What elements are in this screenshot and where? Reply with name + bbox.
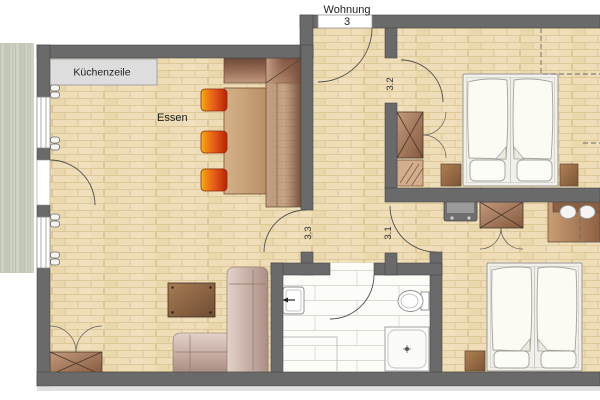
wall-segment bbox=[385, 103, 397, 188]
hall-shelf bbox=[397, 160, 423, 186]
door-label-3-3: 3.3 bbox=[303, 226, 314, 239]
dining-label: Essen bbox=[157, 112, 188, 124]
toilet bbox=[398, 291, 429, 312]
wall-segment bbox=[374, 263, 442, 275]
wall-segment bbox=[37, 268, 50, 386]
wall-segment bbox=[37, 148, 50, 160]
shower bbox=[385, 327, 429, 371]
window bbox=[37, 97, 50, 148]
dining-chairs bbox=[201, 89, 227, 191]
door-label-3-2: 3.2 bbox=[385, 77, 396, 90]
dining-chair bbox=[201, 89, 227, 111]
wall-segment bbox=[37, 372, 600, 386]
double-bed-2 bbox=[487, 263, 582, 371]
terrace bbox=[0, 43, 34, 273]
nightstand bbox=[560, 164, 578, 186]
wall-segment bbox=[385, 28, 397, 58]
duvet bbox=[513, 79, 553, 159]
wall-segment bbox=[385, 188, 600, 202]
desk bbox=[548, 199, 600, 242]
window bbox=[37, 217, 50, 268]
wall-segment bbox=[37, 45, 50, 97]
floor-plan-drawing: Küchenzeile bbox=[0, 0, 600, 400]
wall-segment bbox=[301, 45, 313, 210]
dining-chair bbox=[201, 169, 227, 191]
kitchen-unit-label: Küchenzeile bbox=[73, 67, 130, 79]
balcony-door-opening bbox=[37, 160, 50, 205]
wall-segment bbox=[37, 205, 50, 217]
pillow bbox=[470, 160, 505, 181]
dining-table bbox=[224, 88, 266, 194]
desk-chair bbox=[560, 206, 576, 219]
apartment-label-line2: 3 bbox=[344, 16, 350, 28]
wall-segment bbox=[385, 253, 397, 275]
wall-segment bbox=[372, 15, 600, 28]
double-bed-1 bbox=[463, 74, 558, 186]
pillow bbox=[517, 160, 552, 181]
door-label-3-1: 3.1 bbox=[383, 226, 394, 239]
pillow bbox=[541, 351, 576, 368]
tv bbox=[444, 199, 477, 221]
bathroom-sink bbox=[283, 287, 305, 314]
kitchen-unit: Küchenzeile bbox=[47, 59, 157, 85]
coffee-table bbox=[168, 283, 215, 317]
dining-chair bbox=[201, 131, 227, 153]
nightstand bbox=[465, 351, 485, 371]
wall-segment bbox=[37, 45, 313, 58]
duvet bbox=[537, 267, 577, 351]
nightstand bbox=[441, 164, 461, 186]
wall-shadow bbox=[37, 386, 600, 391]
floor-plan-page: Küchenzeile bbox=[0, 0, 600, 400]
wall-segment bbox=[271, 263, 283, 372]
duvet bbox=[492, 267, 532, 351]
apartment-label-line1: Wohnung bbox=[324, 4, 371, 16]
desk-chair bbox=[579, 206, 595, 219]
duvet bbox=[468, 79, 508, 159]
pillow bbox=[494, 351, 529, 368]
